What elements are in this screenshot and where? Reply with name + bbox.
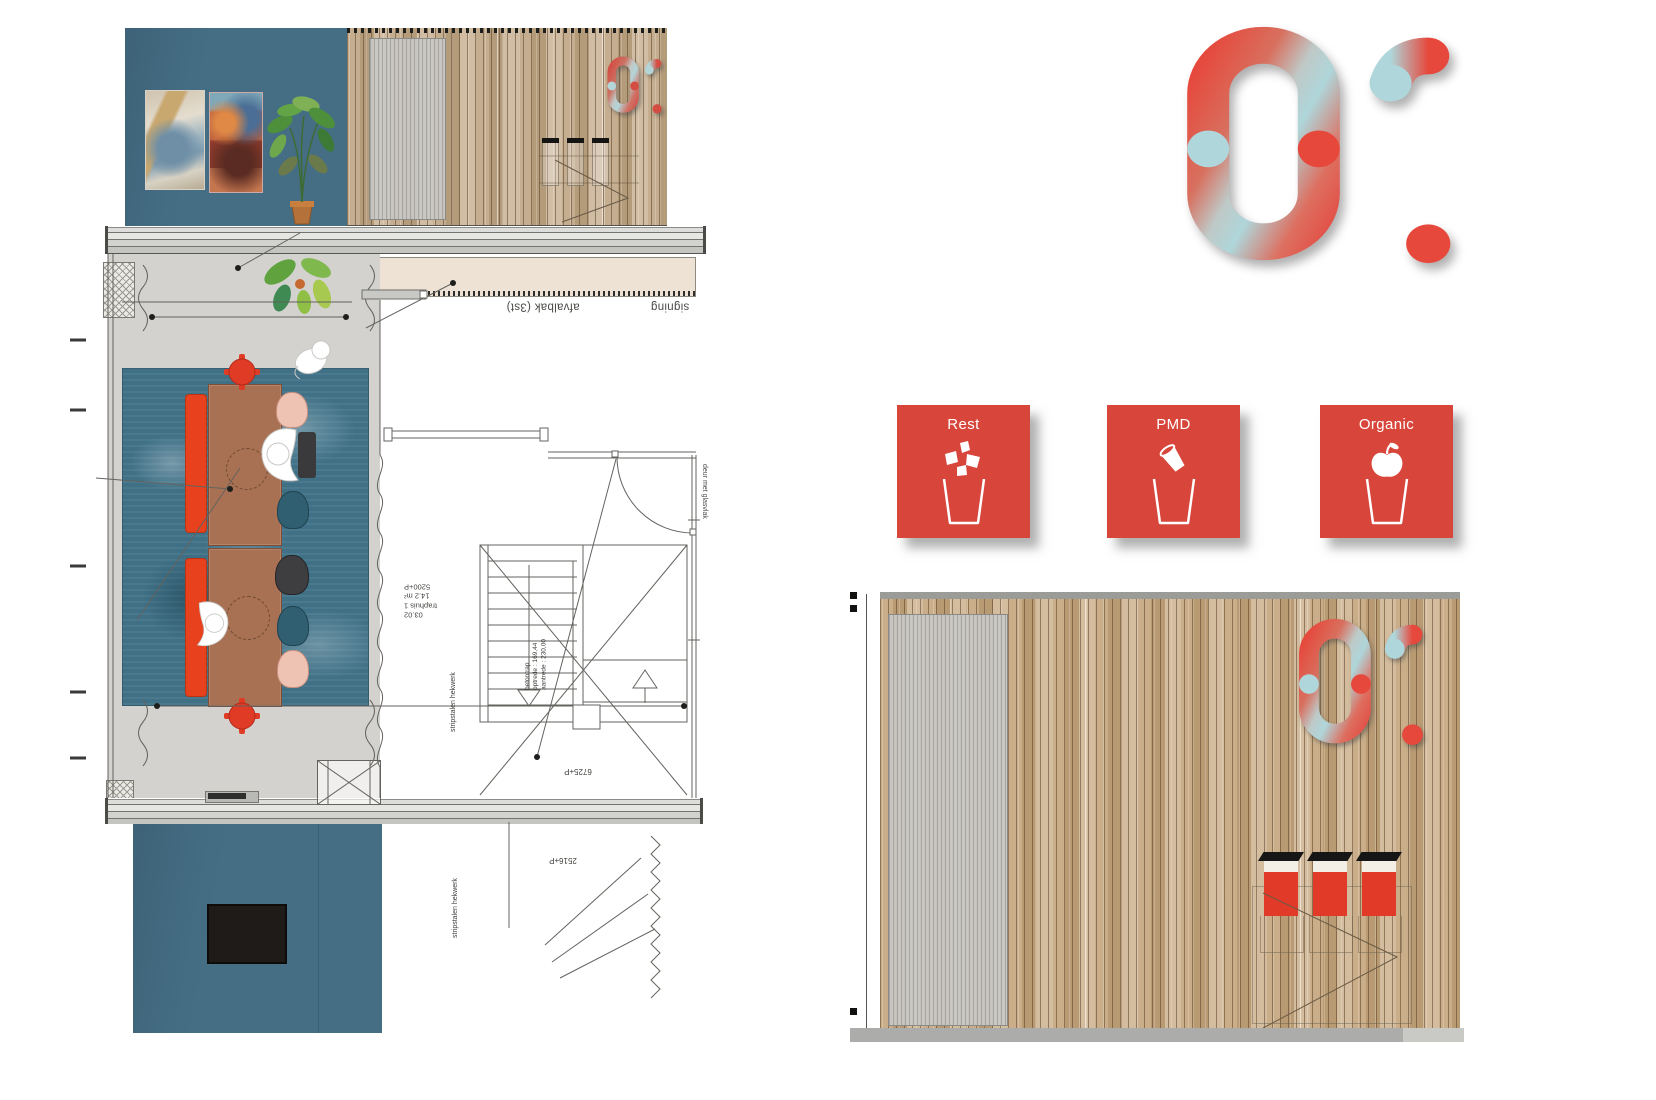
person-figure-walking: [286, 334, 340, 386]
teal-wall-elevation-top: [125, 28, 347, 233]
waste-card-label: Organic: [1320, 416, 1453, 433]
plan-bench: [185, 394, 207, 533]
wood-slat-elevation-top: 01: [347, 28, 667, 228]
frame-mark: [850, 605, 857, 612]
frame-mark: [850, 1008, 857, 1015]
signing-strip: [358, 257, 696, 297]
frame-line: [866, 594, 867, 1030]
stair-dimension-note: betontrap optrede : 169,44 aantrede : 23…: [524, 598, 548, 690]
door-note: deur met glasvlak: [699, 464, 708, 560]
pmd-cup-icon: [1144, 441, 1204, 527]
plan-chair-teal: [277, 606, 309, 646]
plan-chair-teal: [277, 491, 309, 529]
frame-mark: [850, 592, 857, 599]
person-figure: [182, 598, 240, 650]
person-figure: [256, 424, 308, 486]
signing-label: signing: [635, 299, 705, 313]
waste-card-organic: Organic: [1320, 405, 1453, 538]
rest-scraps-icon: [934, 441, 994, 527]
plan-cabinet-cross: [317, 760, 381, 805]
plan-chair-pink: [276, 392, 308, 428]
tv-screen: [207, 904, 287, 964]
room-code: 03.02: [404, 610, 462, 619]
stair-note-line: aantrede : 230,00: [540, 598, 548, 690]
fence-note-bottom: stripstalen hekwerk: [452, 842, 461, 938]
stair-note-line: optrede : 169,44: [532, 598, 540, 690]
floor-line: [850, 1028, 1464, 1042]
panel-seam: [1085, 592, 1086, 1028]
waste-card-rest: Rest: [897, 405, 1030, 538]
room-area: 14.2 m²: [404, 591, 462, 600]
waste-card-label: PMD: [1107, 416, 1240, 433]
stair-note-line: betontrap: [524, 598, 532, 690]
waste-card-label: Rest: [897, 416, 1030, 433]
room-level: 5200+P: [404, 582, 462, 591]
plan-stool: [224, 698, 260, 734]
wood-slat-elevation-bottom: 01: [850, 588, 1464, 1044]
elevation-guide-lines: [347, 28, 667, 225]
glass-panel: [888, 614, 1008, 1026]
level-note-bottom: 2516+P: [536, 855, 590, 865]
wall-art-frame-2: [209, 92, 263, 193]
big-number-label: 01: [1457, 25, 1458, 26]
fence-note-stair: stripstalen hekwerk: [450, 636, 459, 732]
top-rail: [880, 592, 1460, 599]
plan-chair-dark: [275, 555, 309, 595]
teal-wall-elevation-bottom: [133, 824, 382, 1033]
waste-bin-elevation: [1258, 852, 1304, 953]
plan-plant-top-icon: [256, 250, 344, 318]
plan-chair-pink: [277, 650, 309, 688]
waste-bin-elevation: [1356, 852, 1402, 953]
wall-section-band-top: [105, 226, 706, 254]
wall-hatch-detail: [103, 262, 135, 318]
plan-stool: [224, 354, 260, 390]
room-name: traphuis 1: [404, 601, 462, 610]
organic-apple-icon: [1357, 441, 1417, 527]
waste-bin-elevation: [1307, 852, 1353, 953]
potted-plant-icon: [260, 88, 344, 228]
room-info-note: 03.02 traphuis 1 14.2 m² 5200+P: [404, 582, 462, 620]
panel-seam: [318, 824, 319, 1033]
waste-card-pmd: PMD: [1107, 405, 1240, 538]
level-note-stair: 6725+P: [552, 766, 604, 776]
plan-tv-unit: [208, 793, 246, 799]
wall-signage-01: 01: [1298, 618, 1426, 751]
number-01-graphic: 01: [1185, 25, 1457, 270]
afvalbak-label: afvalbak (3st): [478, 299, 608, 313]
wall-section-band-bottom: [105, 798, 703, 824]
wall-art-frame-1: [145, 90, 205, 190]
interior-design-sheet: 01 afvalbak (3st) signing: [0, 0, 1656, 1100]
